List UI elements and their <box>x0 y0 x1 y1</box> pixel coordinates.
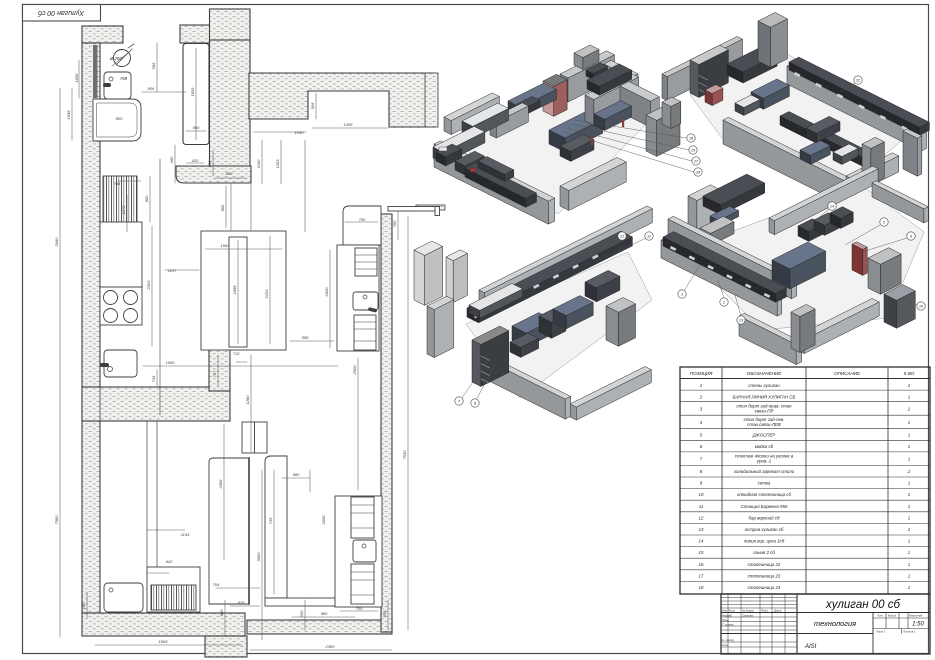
svg-text:AISI: AISI <box>804 644 817 650</box>
svg-text:5: 5 <box>700 433 703 438</box>
svg-text:800: 800 <box>116 116 123 121</box>
svg-text:1: 1 <box>908 433 911 438</box>
svg-text:420: 420 <box>192 158 199 163</box>
svg-text:11: 11 <box>699 504 704 509</box>
svg-text:технология: технология <box>814 619 856 628</box>
svg-text:1100: 1100 <box>256 159 261 168</box>
svg-text:ОБОЗНАЧЕНИЕ: ОБОЗНАЧЕНИЕ <box>747 371 783 376</box>
svg-text:столешница 23: столешница 23 <box>748 573 781 578</box>
svg-text:704: 704 <box>213 582 220 587</box>
svg-text:1280: 1280 <box>245 395 250 405</box>
svg-text:1998: 1998 <box>232 285 237 295</box>
svg-text:уров.-1: уров.-1 <box>756 459 772 464</box>
svg-text:Т. контр.: Т. контр. <box>722 623 734 627</box>
svg-text:1: 1 <box>908 383 911 388</box>
svg-text:1: 1 <box>908 527 911 532</box>
svg-text:1: 1 <box>908 504 911 509</box>
svg-text:1: 1 <box>908 515 911 520</box>
svg-text:Листов 1: Листов 1 <box>902 630 916 634</box>
svg-text:1050: 1050 <box>295 130 305 135</box>
svg-text:Лист 1: Лист 1 <box>875 630 886 634</box>
svg-text:700: 700 <box>356 606 363 611</box>
svg-text:15: 15 <box>699 550 704 555</box>
svg-text:1: 1 <box>908 492 911 497</box>
svg-text:506: 506 <box>310 102 315 109</box>
svg-text:800: 800 <box>226 171 233 176</box>
svg-text:Суркина: Суркина <box>742 614 753 618</box>
svg-text:№ докум.: № докум. <box>742 609 755 613</box>
svg-text:1458: 1458 <box>344 122 354 127</box>
svg-text:727: 727 <box>212 370 217 377</box>
svg-text:2496: 2496 <box>218 479 223 490</box>
svg-text:2000: 2000 <box>321 515 326 526</box>
svg-text:330: 330 <box>382 610 387 617</box>
svg-text:7530: 7530 <box>402 450 407 460</box>
svg-text:2: 2 <box>699 395 703 400</box>
svg-text:ПОЗИЦИЯ: ПОЗИЦИЯ <box>690 371 714 376</box>
svg-text:БАРНАЯ ЛИНИЯ ХУЛИГАН СБ: БАРНАЯ ЛИНИЯ ХУЛИГАН СБ <box>733 395 796 400</box>
svg-text:Утв.: Утв. <box>722 643 729 647</box>
svg-text:1143: 1143 <box>181 532 190 537</box>
svg-text:16: 16 <box>699 562 704 567</box>
svg-text:980: 980 <box>321 611 328 616</box>
svg-text:1: 1 <box>908 420 911 425</box>
svg-text:Лит.: Лит. <box>876 614 884 618</box>
svg-text:холодильный агрегат стола: холодильный агрегат стола <box>733 469 795 474</box>
svg-text:1: 1 <box>700 383 703 388</box>
svg-text:256: 256 <box>207 160 212 168</box>
svg-text:откидная столешница сб: откидная столешница сб <box>737 492 791 497</box>
svg-text:716: 716 <box>151 375 156 382</box>
svg-text:2380: 2380 <box>325 644 336 649</box>
svg-text:1: 1 <box>908 539 911 544</box>
svg-text:1855: 1855 <box>190 87 195 97</box>
svg-text:700: 700 <box>359 217 366 222</box>
svg-text:остров хулиган сб: остров хулиган сб <box>745 527 784 532</box>
svg-text:17: 17 <box>699 573 704 578</box>
svg-text:1: 1 <box>908 407 911 412</box>
svg-text:Хулиган 00 сб: Хулиган 00 сб <box>37 9 85 17</box>
svg-text:12: 12 <box>699 515 704 520</box>
svg-text:Станция Бармена 950: Станция Бармена 950 <box>741 504 788 509</box>
svg-text:стан.связи-ЛЕВ: стан.связи-ЛЕВ <box>747 422 781 427</box>
svg-text:1107: 1107 <box>168 268 177 273</box>
svg-text:6: 6 <box>700 444 703 449</box>
svg-text:сетка: сетка <box>758 481 771 486</box>
svg-text:330: 330 <box>299 610 304 617</box>
svg-text:806: 806 <box>148 86 155 91</box>
svg-text:1096: 1096 <box>74 73 79 83</box>
svg-text:500: 500 <box>193 125 200 130</box>
svg-text:Н. контр.: Н. контр. <box>722 638 735 642</box>
svg-text:18: 18 <box>699 585 704 590</box>
svg-text:К-ВО: К-ВО <box>904 371 915 376</box>
svg-text:хулиган 00 сб: хулиган 00 сб <box>825 599 900 611</box>
svg-text:1945: 1945 <box>66 110 71 120</box>
svg-text:14: 14 <box>830 205 834 209</box>
svg-text:715: 715 <box>268 517 273 524</box>
svg-text:связи-ПР: связи-ПР <box>755 409 774 414</box>
svg-text:бар верхний сб: бар верхний сб <box>749 515 780 520</box>
svg-text:13: 13 <box>699 527 704 532</box>
svg-text:1: 1 <box>908 457 911 462</box>
svg-text:3940: 3940 <box>54 237 59 247</box>
svg-text:Масштаб: Масштаб <box>909 614 922 618</box>
svg-text:4: 4 <box>700 420 703 425</box>
svg-text:1554: 1554 <box>221 243 231 248</box>
svg-text:столешница 22: столешница 22 <box>748 562 781 567</box>
svg-text:2303: 2303 <box>146 280 151 291</box>
svg-text:9: 9 <box>700 481 703 486</box>
svg-text:11: 11 <box>647 235 651 239</box>
svg-text:744: 744 <box>114 181 121 186</box>
svg-text:1: 1 <box>908 573 911 578</box>
svg-text:стены хулиган: стены хулиган <box>748 383 780 388</box>
svg-text:7580: 7580 <box>54 515 59 525</box>
svg-text:10: 10 <box>699 492 704 497</box>
svg-text:Подп.: Подп. <box>761 609 769 613</box>
svg-text:2000: 2000 <box>324 287 329 298</box>
svg-text:1: 1 <box>908 550 911 555</box>
svg-text:802: 802 <box>220 204 225 211</box>
svg-text:980: 980 <box>293 472 300 477</box>
svg-text:710: 710 <box>233 351 240 356</box>
svg-text:ДЖОСПЕР: ДЖОСПЕР <box>752 433 776 438</box>
svg-text:Дата: Дата <box>773 609 782 613</box>
svg-text:2154: 2154 <box>264 289 269 300</box>
svg-text:596: 596 <box>151 62 156 69</box>
svg-text:мойка сб: мойка сб <box>755 444 774 449</box>
svg-text:1: 1 <box>908 444 911 449</box>
svg-text:7: 7 <box>700 457 703 462</box>
svg-text:460: 460 <box>169 156 174 163</box>
svg-text:1: 1 <box>908 562 911 567</box>
svg-text:ОПИСАНИЕ: ОПИСАНИЕ <box>834 371 861 376</box>
svg-text:3000: 3000 <box>256 552 261 562</box>
svg-text:1: 1 <box>908 585 911 590</box>
svg-text:1990: 1990 <box>166 360 176 365</box>
svg-text:1:50: 1:50 <box>912 622 924 628</box>
svg-text:1: 1 <box>908 481 911 486</box>
svg-text:870: 870 <box>238 600 245 605</box>
svg-text:855: 855 <box>302 335 309 340</box>
svg-text:Ø 250: Ø 250 <box>109 56 122 61</box>
svg-text:900: 900 <box>144 195 149 202</box>
svg-text:Изм Лист: Изм Лист <box>722 609 736 613</box>
svg-text:столешница 24: столешница 24 <box>748 585 781 590</box>
svg-text:700: 700 <box>392 220 397 227</box>
svg-text:1272: 1272 <box>121 205 126 215</box>
svg-text:2: 2 <box>907 469 911 474</box>
svg-text:3: 3 <box>700 407 703 412</box>
svg-text:769: 769 <box>120 76 128 81</box>
svg-text:8: 8 <box>700 469 703 474</box>
svg-text:600: 600 <box>219 609 224 616</box>
svg-text:Разраб.: Разраб. <box>722 614 732 618</box>
svg-text:14: 14 <box>699 539 704 544</box>
svg-text:Пров.: Пров. <box>722 618 730 622</box>
svg-text:140: 140 <box>81 602 86 609</box>
svg-text:1595: 1595 <box>159 639 169 644</box>
svg-text:Масса: Масса <box>888 614 897 618</box>
svg-text:942: 942 <box>166 559 173 564</box>
svg-text:2500: 2500 <box>352 365 357 376</box>
svg-text:1: 1 <box>908 395 911 400</box>
svg-text:линия гор. цеха 1сб: линия гор. цеха 1сб <box>743 539 785 544</box>
svg-text:линия 2 сб: линия 2 сб <box>752 550 775 555</box>
svg-text:1203: 1203 <box>275 159 280 169</box>
